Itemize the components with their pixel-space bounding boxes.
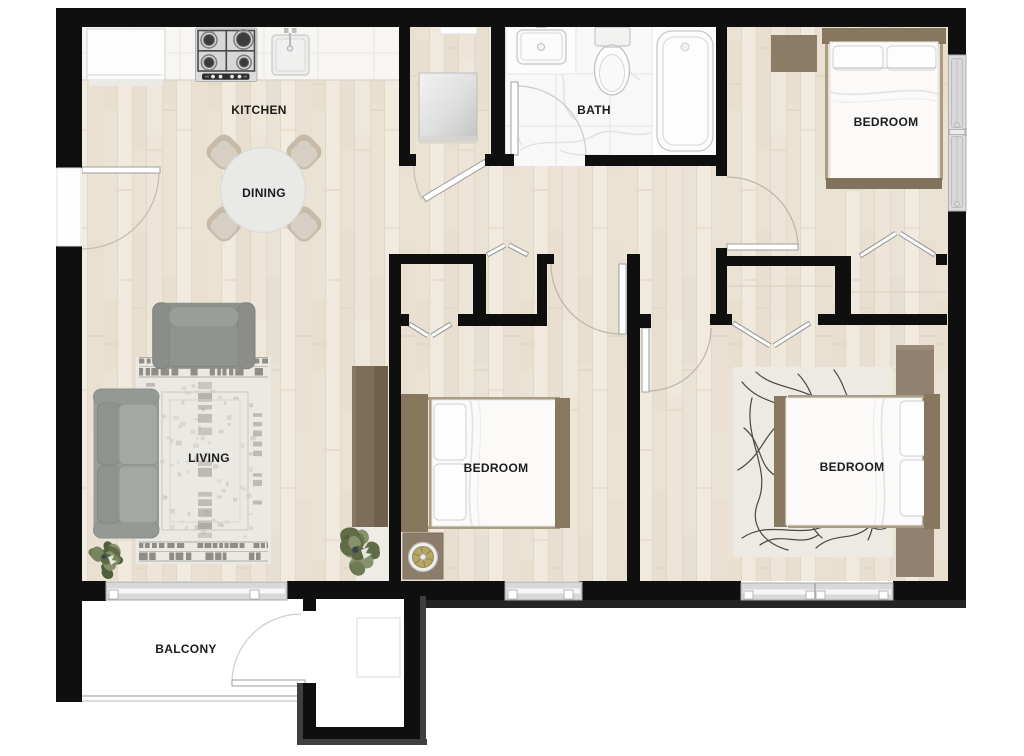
svg-text:BALCONY: BALCONY	[155, 642, 216, 656]
svg-text:DINING: DINING	[242, 186, 286, 200]
svg-text:BEDROOM: BEDROOM	[854, 115, 919, 129]
svg-text:LIVING: LIVING	[188, 451, 230, 465]
svg-text:BEDROOM: BEDROOM	[820, 460, 885, 474]
svg-text:BATH: BATH	[577, 103, 611, 117]
svg-text:KITCHEN: KITCHEN	[231, 103, 286, 117]
svg-text:BEDROOM: BEDROOM	[464, 461, 529, 475]
